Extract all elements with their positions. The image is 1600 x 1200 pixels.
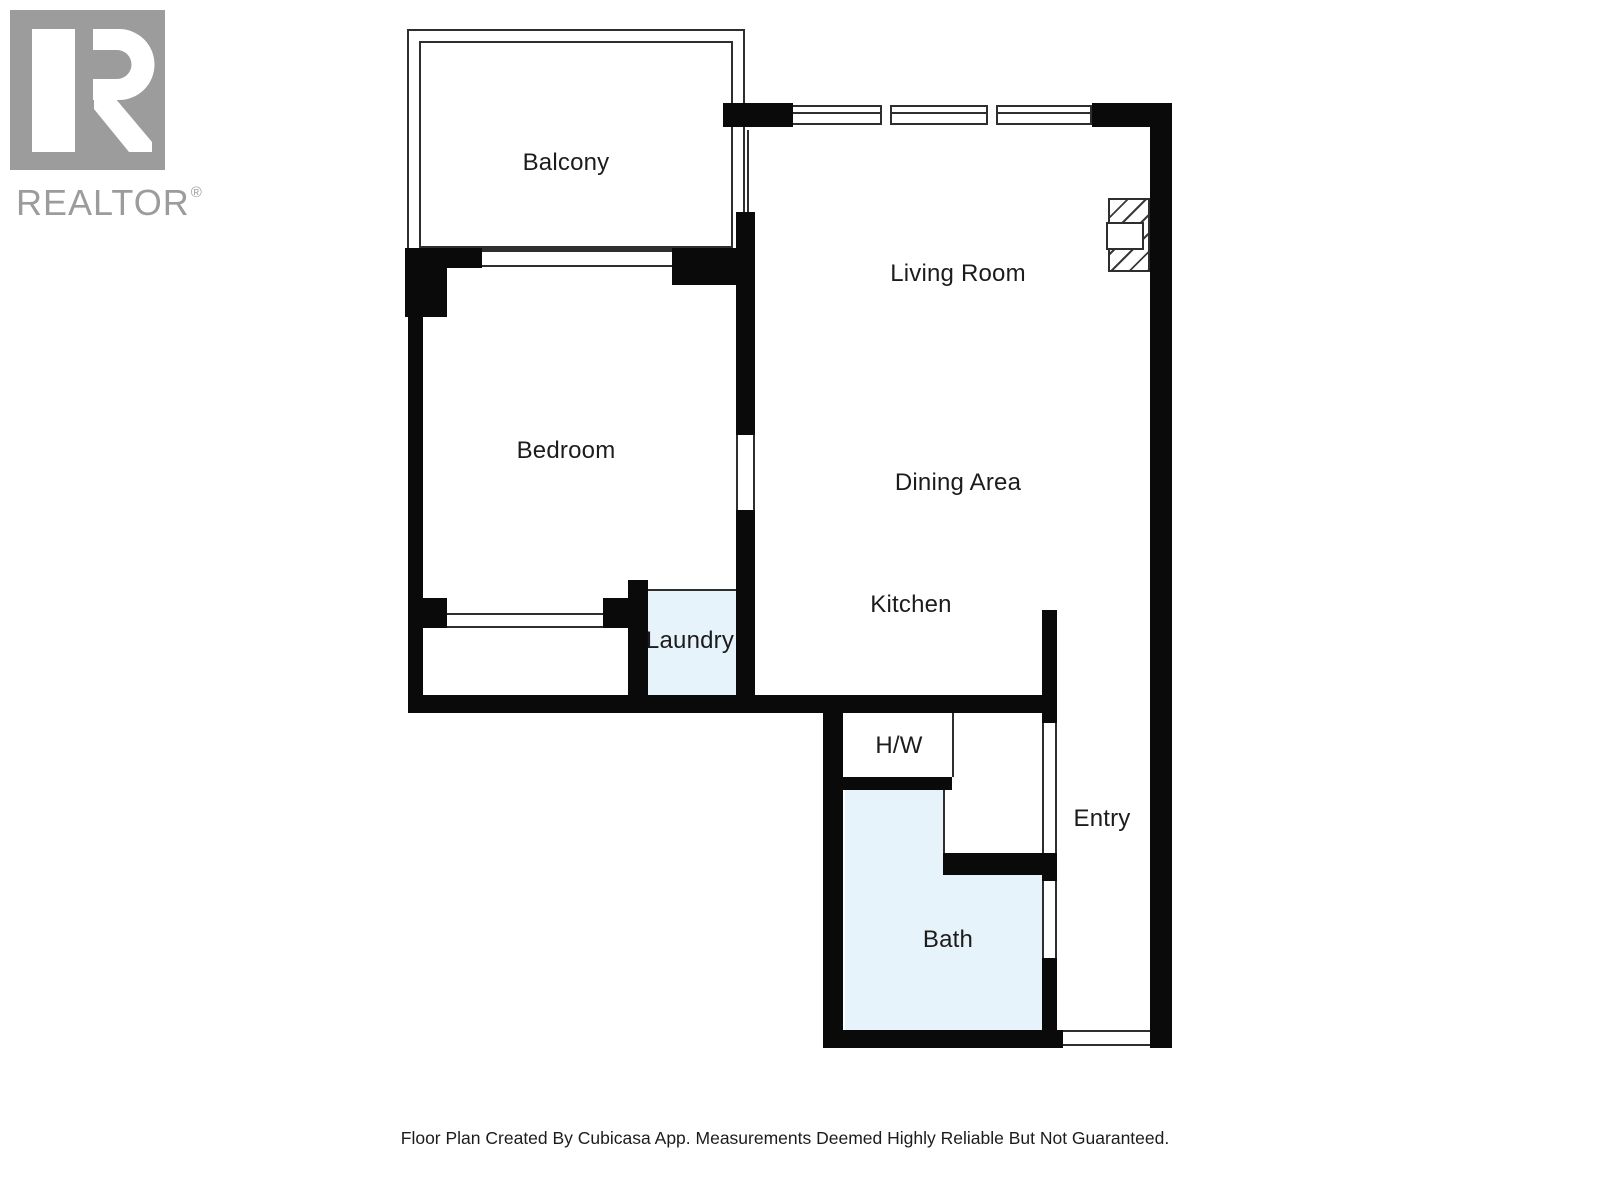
wall-bath-left (823, 713, 843, 1048)
label-entry: Entry (1073, 805, 1130, 833)
wall-bedroom-window-stub-right (603, 598, 628, 628)
bedroom-slider-bottom-line (482, 265, 672, 267)
window-mullion-right (986, 105, 998, 125)
entry-closet-jamb-left (1042, 723, 1044, 853)
wall-balcony-corner-right (672, 248, 742, 285)
entry-closet-jamb-right (1055, 723, 1057, 853)
bath-outline-right-upper (943, 790, 945, 855)
balcony-opening-jamb-line (747, 130, 749, 214)
label-laundry: Laundry (646, 627, 734, 655)
wall-bath-step (943, 853, 1057, 875)
bedroom-window-bottom-line (447, 626, 603, 628)
bedroom-door-jamb-right (753, 435, 755, 510)
bedroom-slider-top-line (482, 250, 672, 252)
bath-floor-fill-upper (845, 790, 943, 1030)
floor-plan: Balcony Living Room Bedroom Dining Area … (0, 0, 1600, 1200)
wall-mid-lower (736, 510, 755, 713)
label-living-room: Living Room (890, 260, 1026, 288)
label-dining-area: Dining Area (895, 469, 1021, 497)
window-mullion-left (880, 105, 892, 125)
wall-top-left (723, 103, 793, 127)
laundry-doorway-line (648, 589, 736, 591)
living-room-window-sill-line (792, 112, 1090, 114)
wall-entry-piece-upper (1042, 853, 1057, 881)
wall-bedroom-window-stub-left (420, 598, 447, 628)
entry-door-threshold-bottom (1063, 1044, 1160, 1046)
wall-hw-bottom (843, 777, 952, 790)
label-bath: Bath (923, 926, 973, 954)
label-hw: H/W (875, 732, 922, 760)
entry-door-threshold-top (1063, 1030, 1160, 1032)
wall-bottom-bath (823, 1030, 1063, 1048)
wall-kitchen-entry-stub (1042, 610, 1057, 723)
wall-entry-piece-lower (1042, 958, 1057, 1030)
label-kitchen: Kitchen (870, 591, 951, 619)
bath-door-jamb-right (1055, 881, 1057, 958)
wall-left-outer (408, 250, 423, 713)
wall-mid-upper (736, 212, 755, 435)
wall-right-outer (1150, 103, 1172, 1048)
label-bedroom: Bedroom (517, 437, 616, 465)
fireplace-firebox (1106, 222, 1144, 250)
floor-plan-page: REALTOR® (0, 0, 1600, 1200)
footer-disclaimer: Floor Plan Created By Cubicasa App. Meas… (401, 1128, 1169, 1149)
bedroom-window-top-line (447, 613, 603, 615)
living-room-window (790, 105, 1092, 125)
balcony-railing-inner (419, 41, 733, 248)
bedroom-door-jamb-left (736, 435, 738, 510)
bath-door-jamb-left (1042, 881, 1044, 958)
wall-bottom-main (408, 695, 1057, 713)
hw-closet-partition-line (952, 713, 954, 777)
label-balcony: Balcony (523, 149, 610, 177)
